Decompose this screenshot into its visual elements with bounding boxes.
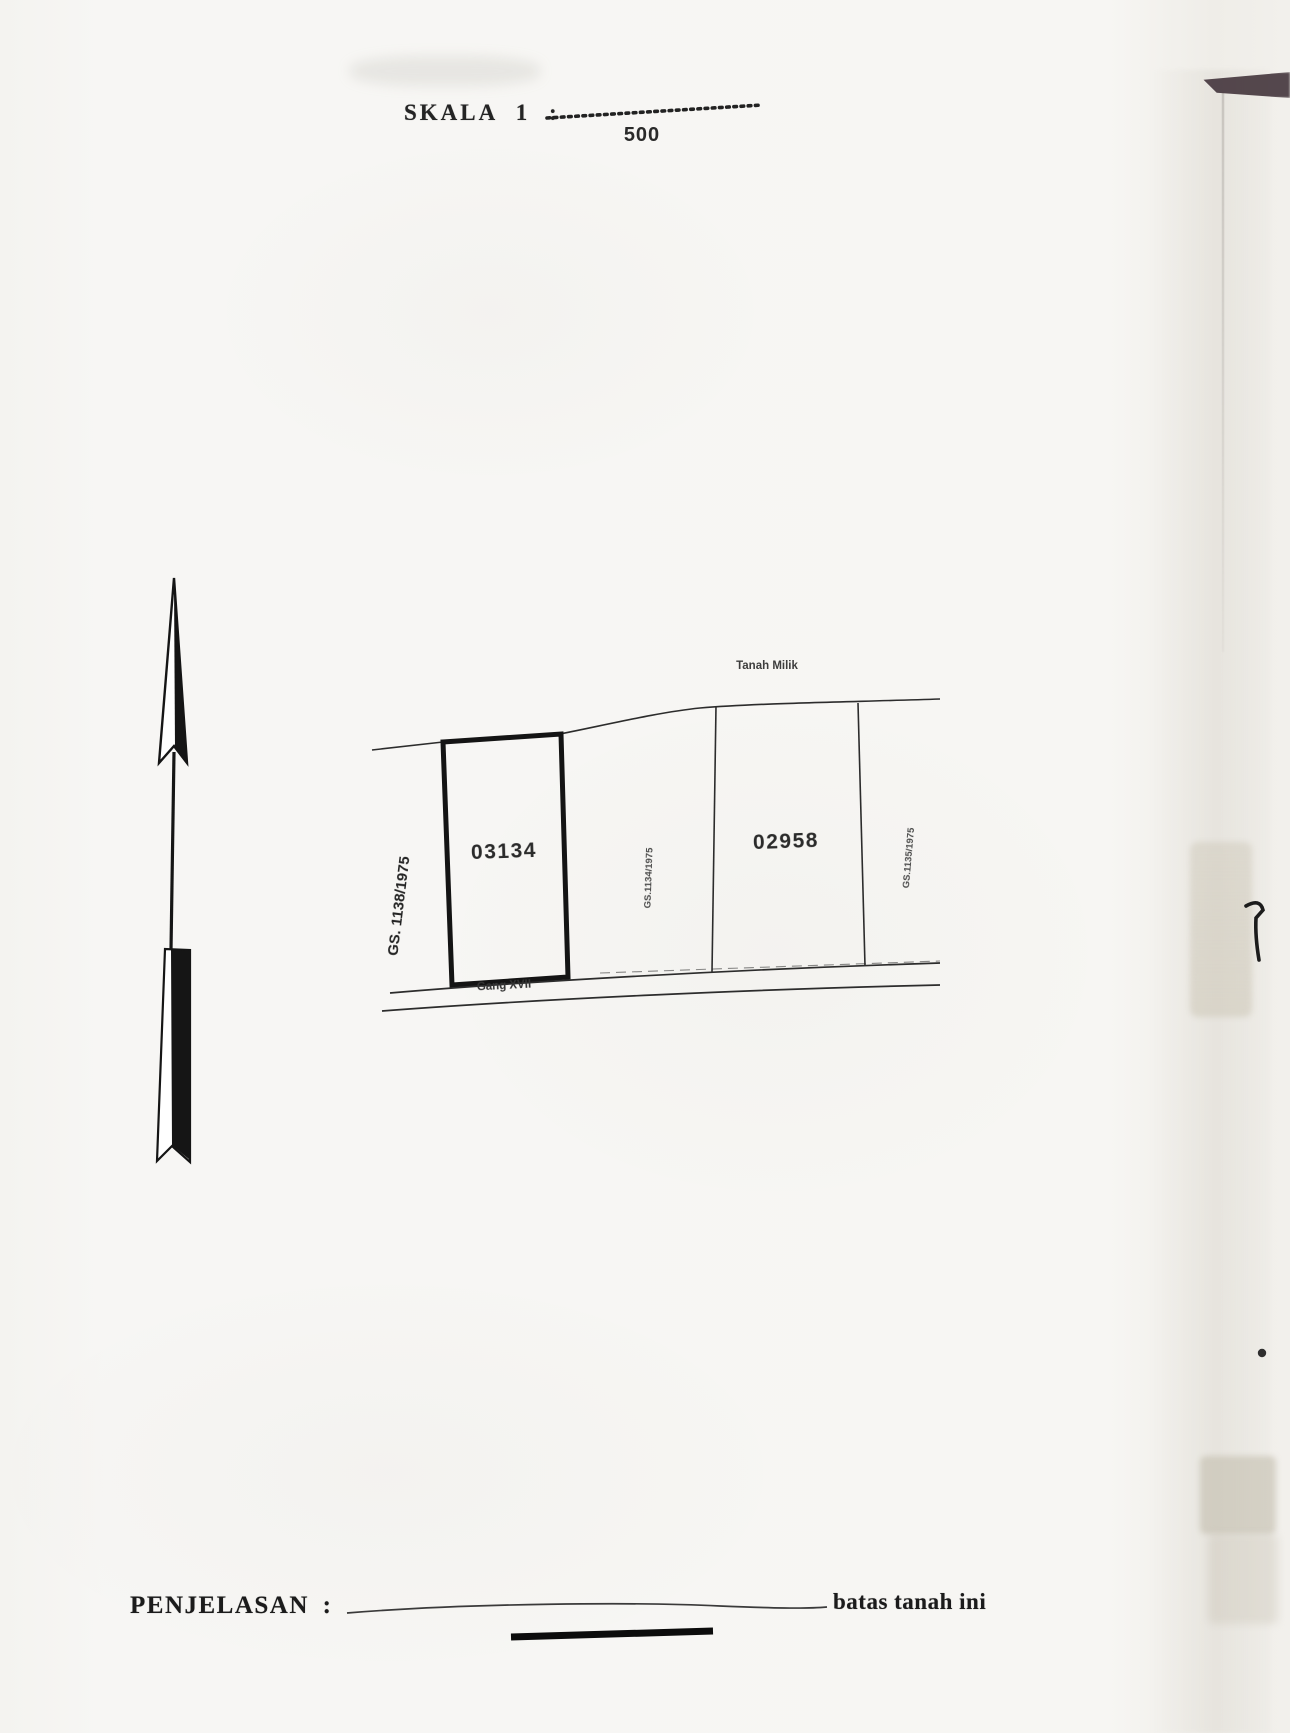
north-arrow-icon: [157, 578, 190, 1162]
legend-boundary-sample-line: [347, 1604, 827, 1613]
paper-crease-line: [1222, 92, 1224, 652]
scanned-survey-document: SKALA 1 : 500 Tanah Milik: [0, 0, 1290, 1733]
road-label: Gang XVII: [454, 977, 554, 994]
scale-dotted-line: [547, 105, 762, 118]
boundary-top-right: [560, 699, 940, 734]
parcel-divider-right: [858, 703, 865, 966]
road-line-dashed: [600, 961, 940, 973]
gs-number-middle: GS.1134/1975: [642, 847, 655, 908]
legend-boundary-text: batas tanah ini: [833, 1589, 986, 1615]
parcel-left-id: 03134: [454, 838, 555, 865]
scan-smudge-bottom-right-2: [1208, 1534, 1278, 1624]
legend-thick-line: [511, 1631, 713, 1637]
land-label: Tanah Milik: [712, 660, 822, 672]
scale-label: SKALA 1 :: [404, 100, 560, 126]
scale-value: 500: [612, 124, 672, 147]
ink-mark-right: [1246, 903, 1263, 960]
scan-smudge-bottom-right: [1200, 1456, 1276, 1534]
gs-number-left: GS. 1138/1975: [384, 855, 413, 956]
scan-smudge-right: [1190, 842, 1252, 1017]
parcel-divider-middle: [712, 706, 716, 972]
gs-number-right: GS.1135/1975: [901, 827, 917, 888]
parcel-right-id: 02958: [736, 828, 837, 855]
scan-corner-mark: [1196, 72, 1290, 98]
boundary-top-left: [372, 742, 443, 750]
ink-dot-right: [1258, 1349, 1266, 1357]
scan-smudge-top: [350, 56, 540, 86]
legend-heading: PENJELASAN :: [130, 1592, 333, 1620]
paper-edge-strip: [1150, 70, 1270, 1733]
